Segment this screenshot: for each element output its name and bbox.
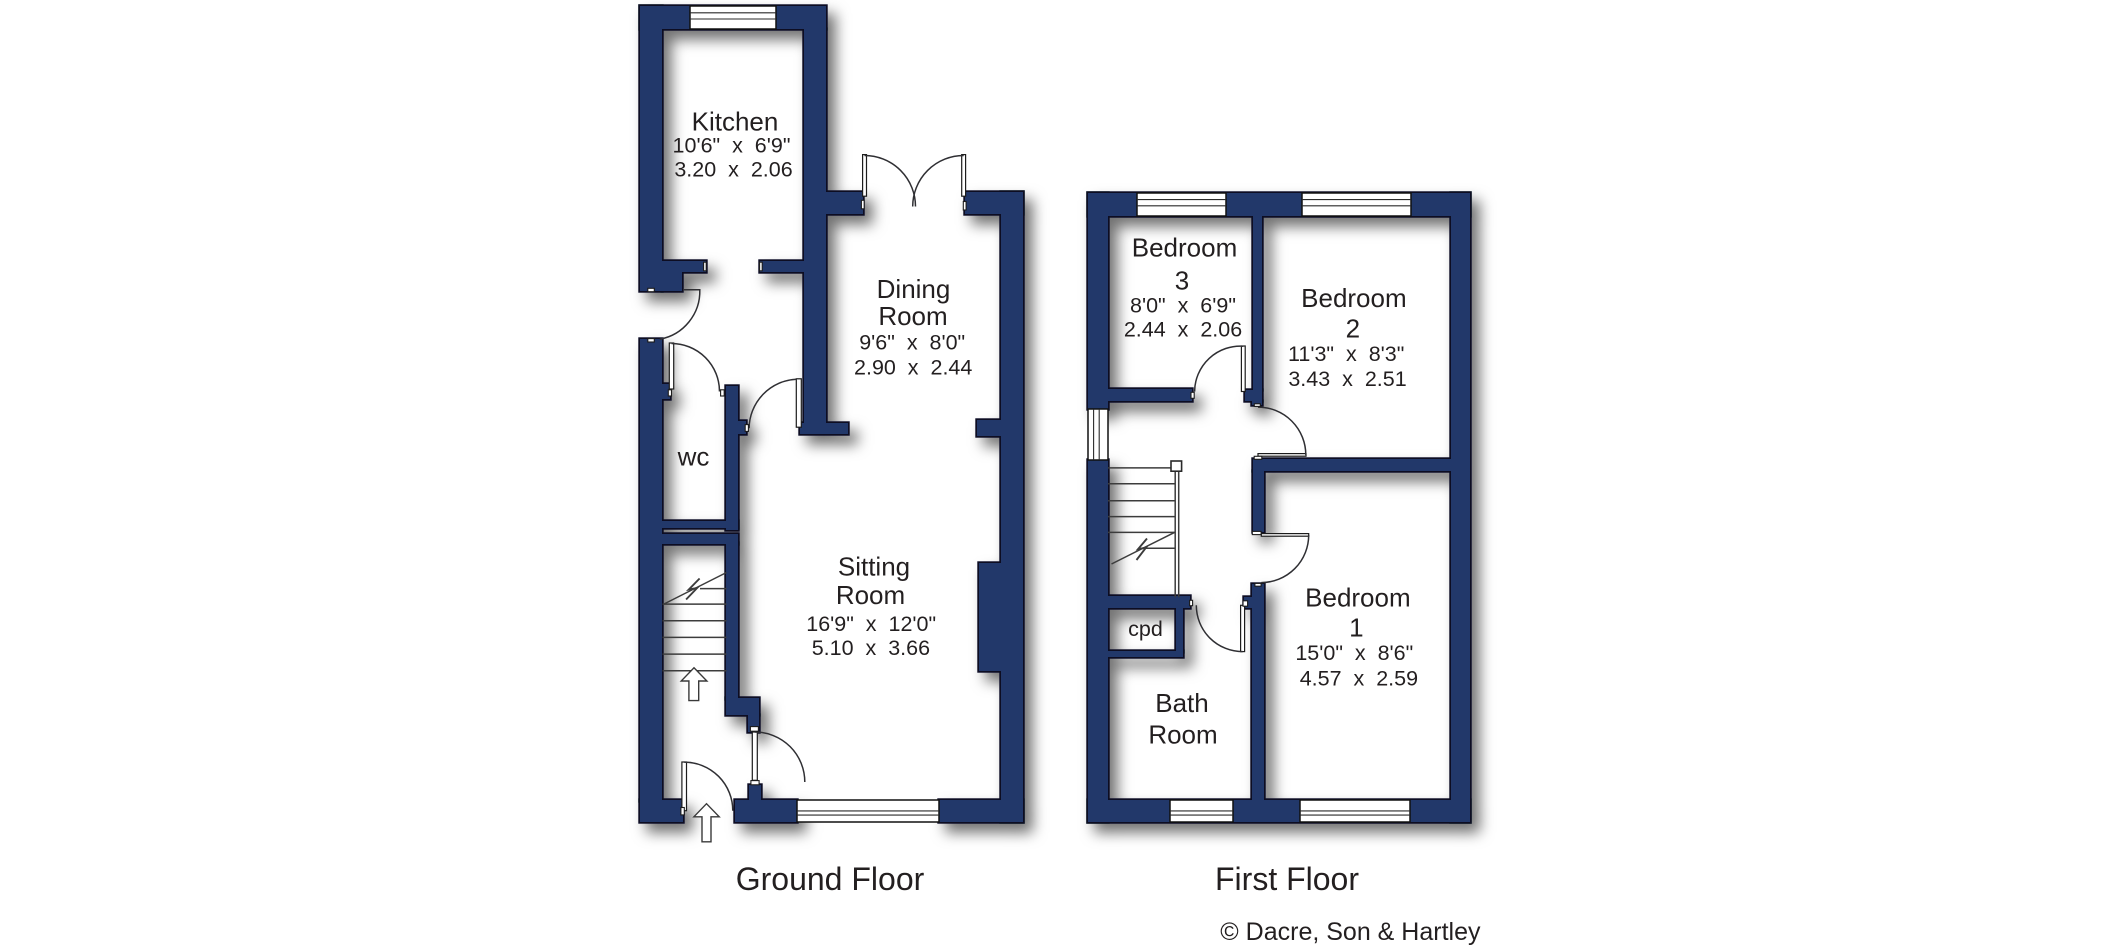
svg-text:Room: Room [1148,720,1217,750]
svg-text:16'9" x 12'0": 16'9" x 12'0" [806,612,936,636]
svg-text:10'6" x 6'9": 10'6" x 6'9" [673,133,791,157]
svg-text:© Dacre, Son & Hartley: © Dacre, Son & Hartley [1220,918,1481,945]
svg-text:3.43 x 2.51: 3.43 x 2.51 [1288,367,1406,391]
svg-text:Bedroom: Bedroom [1305,582,1411,612]
svg-text:Sitting: Sitting [838,552,910,582]
svg-text:2.44 x 2.06: 2.44 x 2.06 [1124,318,1242,342]
svg-text:8'0" x 6'9": 8'0" x 6'9" [1130,293,1236,317]
svg-text:2: 2 [1346,313,1360,343]
svg-text:Dining: Dining [877,274,951,304]
svg-text:3: 3 [1175,265,1189,295]
svg-text:Room: Room [836,580,905,610]
svg-text:5.10 x 3.66: 5.10 x 3.66 [812,636,930,660]
svg-text:Bedroom: Bedroom [1132,233,1238,263]
svg-text:Room: Room [878,301,947,331]
svg-text:9'6" x 8'0": 9'6" x 8'0" [859,330,965,354]
svg-text:4.57 x 2.59: 4.57 x 2.59 [1300,667,1418,691]
svg-text:Bath: Bath [1155,688,1209,718]
svg-text:3.20 x 2.06: 3.20 x 2.06 [674,158,792,182]
svg-text:Bedroom: Bedroom [1301,283,1407,313]
svg-text:wc: wc [677,442,710,472]
svg-text:1: 1 [1349,612,1363,642]
svg-text:2.90 x 2.44: 2.90 x 2.44 [854,355,972,379]
svg-text:cpd: cpd [1128,617,1163,641]
svg-text:11'3" x 8'3": 11'3" x 8'3" [1288,342,1404,366]
svg-text:15'0" x 8'6": 15'0" x 8'6" [1295,641,1413,665]
svg-text:Kitchen: Kitchen [692,107,779,137]
svg-text:First Floor: First Floor [1215,861,1359,897]
svg-text:Ground Floor: Ground Floor [736,861,925,897]
